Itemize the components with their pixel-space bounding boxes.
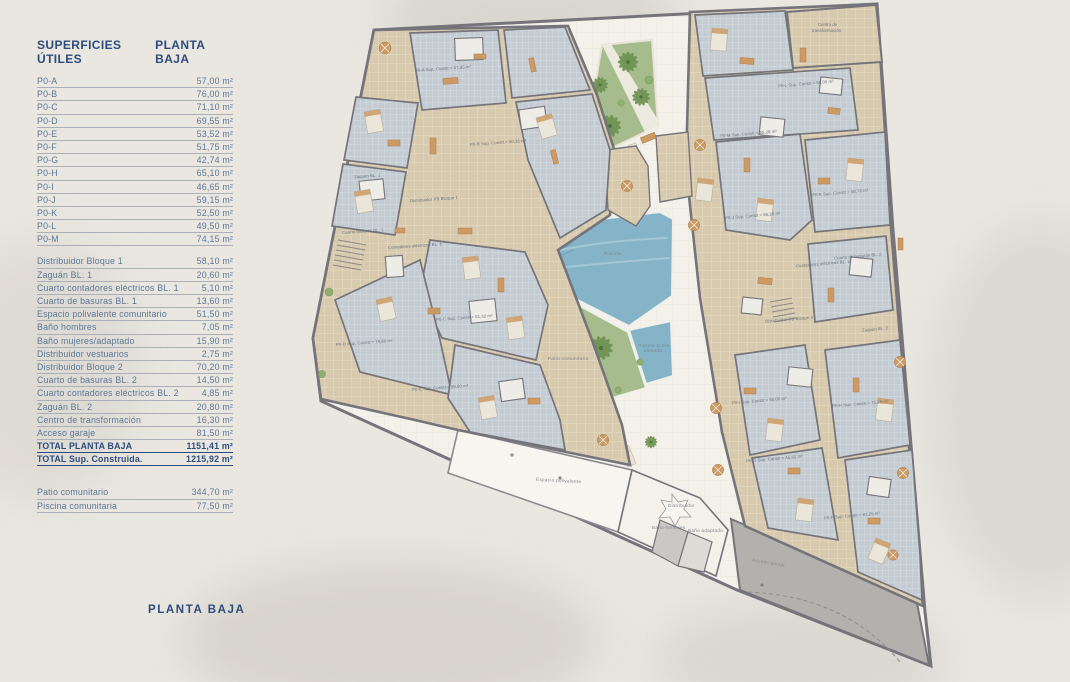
distribuidor-label: Distribuidor	[668, 503, 695, 508]
bay-terrace	[656, 132, 692, 202]
room	[695, 11, 793, 76]
floor-plan: P0-A Sup. Constr.= 57,65 m² P0-B Sup. Co…	[0, 0, 1070, 682]
page: SUPERFICIES ÚTILES PLANTA BAJA P0-A 57,0…	[0, 0, 1070, 682]
patio-label: Patio comunitario	[548, 356, 589, 361]
room	[808, 236, 893, 322]
room	[716, 134, 812, 240]
pool-label: Piscina	[604, 251, 621, 256]
bano-adaptado-label: Baño adaptado	[688, 528, 723, 533]
room	[344, 97, 418, 168]
bano-hombres-label: Baño hombres	[652, 525, 686, 530]
site-plot: P0-A Sup. Constr.= 57,65 m² P0-B Sup. Co…	[313, 4, 931, 666]
elevated-pool-label: elevada	[644, 348, 662, 353]
room-label: Centro de	[818, 22, 838, 27]
room-label: transformación	[812, 28, 842, 33]
